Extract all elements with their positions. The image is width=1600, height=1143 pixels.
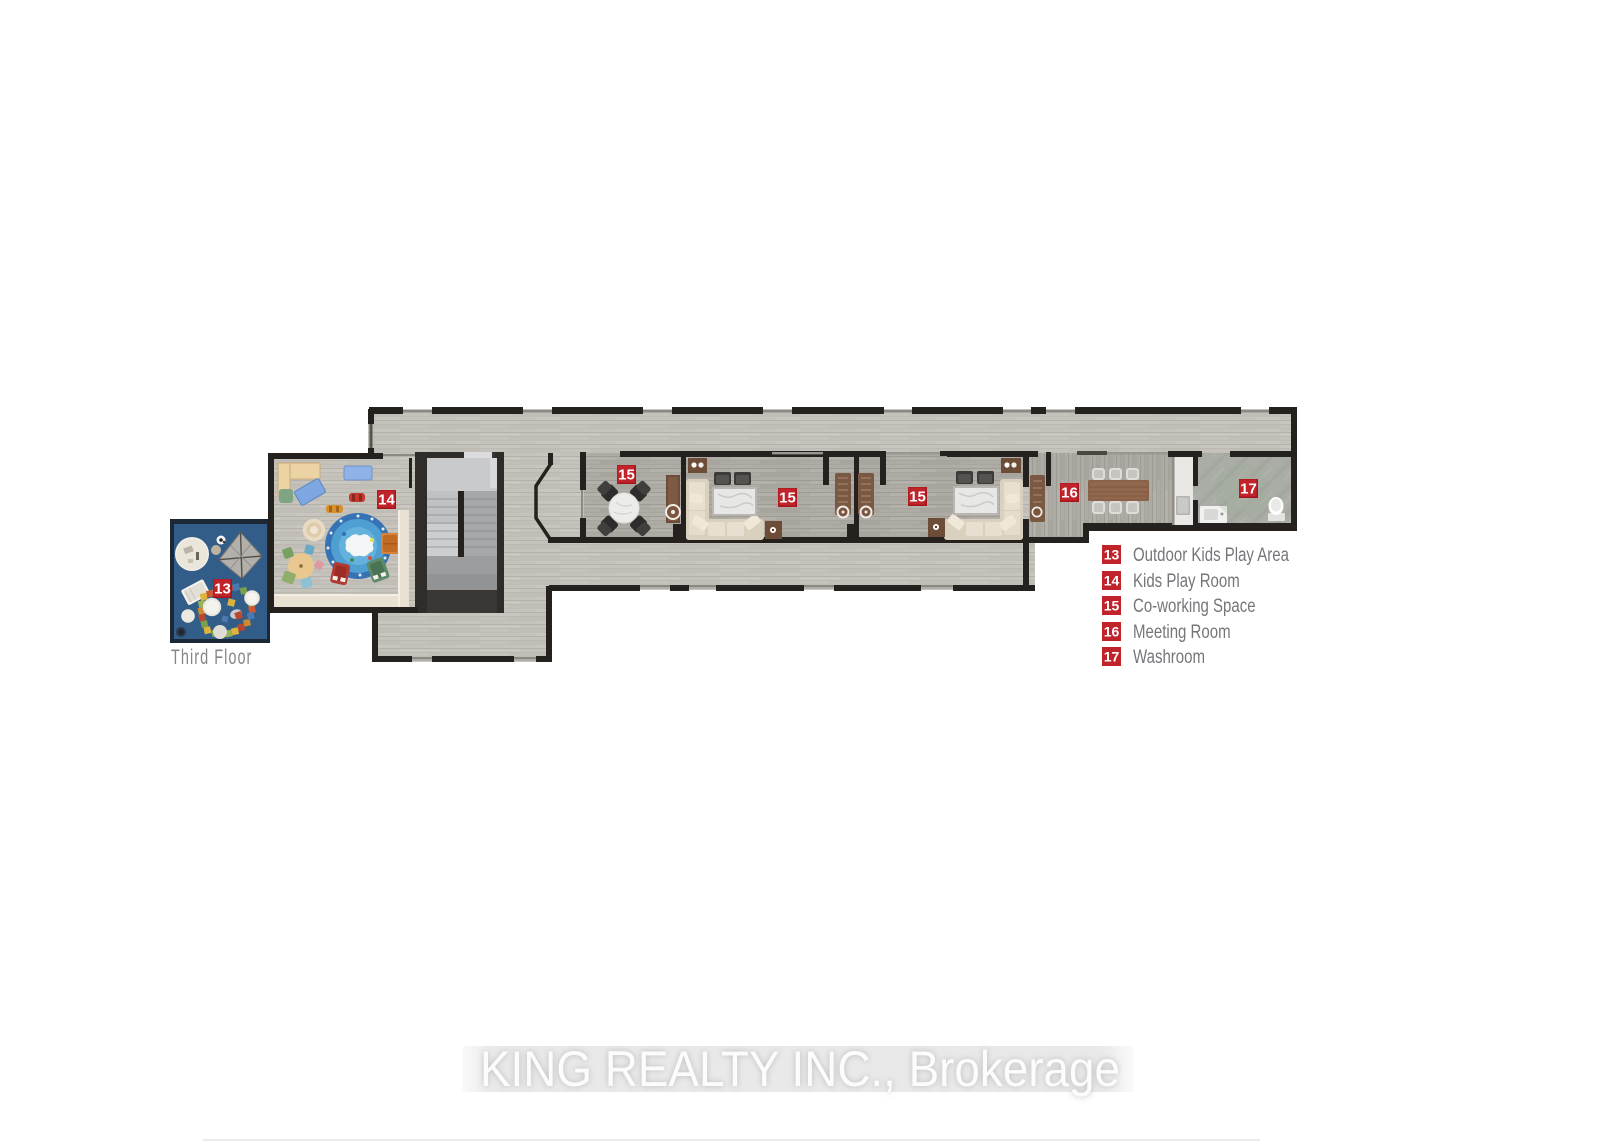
svg-text:17: 17: [1240, 481, 1257, 498]
svg-text:14: 14: [378, 492, 395, 509]
svg-text:Outdoor Kids Play Area: Outdoor Kids Play Area: [1133, 543, 1289, 565]
svg-text:15: 15: [909, 489, 926, 506]
svg-text:Third Floor: Third Floor: [171, 645, 252, 668]
svg-text:Washroom: Washroom: [1133, 645, 1205, 667]
svg-text:Kids Play Room: Kids Play Room: [1133, 569, 1240, 591]
svg-text:15: 15: [618, 467, 635, 484]
svg-text:13: 13: [1104, 547, 1120, 563]
svg-text:16: 16: [1061, 485, 1078, 502]
svg-text:15: 15: [779, 490, 796, 507]
svg-text:15: 15: [1104, 598, 1120, 614]
svg-text:17: 17: [1104, 649, 1120, 665]
svg-text:Meeting Room: Meeting Room: [1133, 620, 1231, 642]
svg-text:16: 16: [1104, 624, 1120, 640]
svg-text:KING REALTY INC., Brokerage: KING REALTY INC., Brokerage: [480, 1041, 1120, 1097]
svg-text:14: 14: [1104, 573, 1120, 589]
svg-text:13: 13: [214, 581, 231, 598]
svg-text:Co-working Space: Co-working Space: [1133, 594, 1256, 616]
